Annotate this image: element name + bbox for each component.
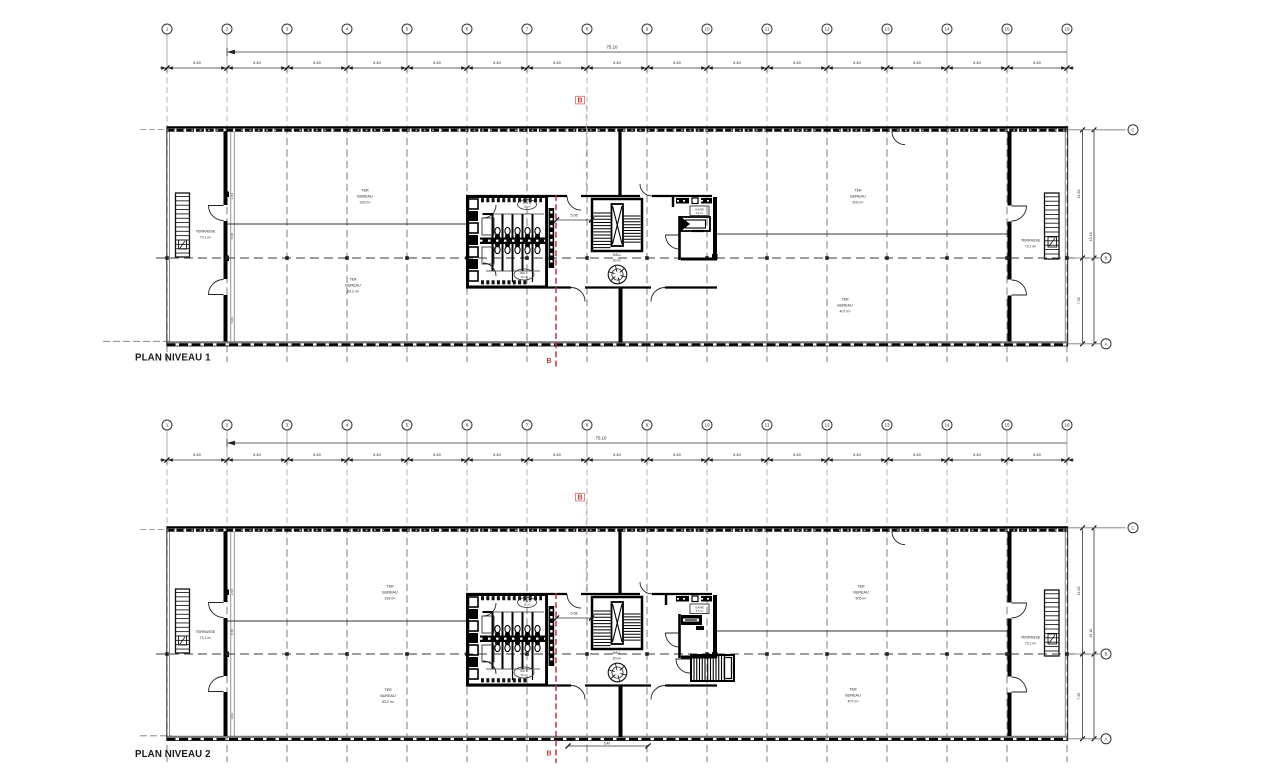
svg-text:11: 11 bbox=[765, 423, 770, 428]
svg-text:5.81: 5.81 bbox=[230, 713, 234, 720]
svg-text:7.35: 7.35 bbox=[1077, 297, 1081, 304]
svg-text:6: 6 bbox=[466, 423, 469, 428]
svg-text:5.40: 5.40 bbox=[253, 452, 262, 457]
svg-text:339 m²: 339 m² bbox=[360, 201, 372, 205]
svg-text:TERRASSE: TERRASSE bbox=[196, 230, 216, 234]
svg-text:5.40: 5.40 bbox=[373, 60, 382, 65]
svg-text:6: 6 bbox=[466, 27, 469, 32]
svg-text:TER: TER bbox=[386, 585, 394, 589]
svg-text:5.40: 5.40 bbox=[193, 60, 202, 65]
svg-text:73.1 m²: 73.1 m² bbox=[200, 636, 212, 640]
svg-text:15 m²: 15 m² bbox=[523, 603, 530, 607]
svg-text:9: 9 bbox=[646, 423, 649, 428]
svg-text:7: 7 bbox=[526, 27, 529, 32]
svg-text:5.40: 5.40 bbox=[613, 452, 622, 457]
svg-text:15: 15 bbox=[1004, 423, 1010, 428]
svg-text:BUREAU: BUREAU bbox=[357, 195, 373, 199]
svg-text:BUREAU: BUREAU bbox=[853, 591, 869, 595]
svg-text:B: B bbox=[1105, 256, 1108, 261]
svg-text:TERRASSE: TERRASSE bbox=[196, 630, 216, 634]
svg-text:5.40: 5.40 bbox=[913, 452, 922, 457]
svg-text:19.18: 19.18 bbox=[1089, 232, 1093, 241]
svg-text:1.20: 1.20 bbox=[614, 286, 620, 290]
svg-text:C: C bbox=[1131, 526, 1134, 531]
svg-text:5.40: 5.40 bbox=[493, 452, 502, 457]
svg-text:9.36: 9.36 bbox=[230, 233, 234, 240]
svg-text:5.40: 5.40 bbox=[973, 60, 982, 65]
svg-text:5.40: 5.40 bbox=[853, 452, 862, 457]
svg-text:13: 13 bbox=[884, 27, 890, 32]
svg-text:BUREAU: BUREAU bbox=[850, 195, 866, 199]
svg-text:BUREAU: BUREAU bbox=[345, 284, 361, 288]
svg-text:5.40: 5.40 bbox=[313, 60, 322, 65]
svg-text:11.83: 11.83 bbox=[1077, 190, 1081, 199]
svg-text:TER: TER bbox=[384, 688, 392, 692]
svg-text:2: 2 bbox=[226, 27, 229, 32]
svg-text:PLAN NIVEAU 2: PLAN NIVEAU 2 bbox=[135, 749, 211, 760]
svg-text:16 m²: 16 m² bbox=[520, 275, 527, 279]
svg-text:407 m²: 407 m² bbox=[840, 310, 852, 314]
svg-text:BUREAU: BUREAU bbox=[845, 694, 861, 698]
svg-text:TER: TER bbox=[857, 585, 865, 589]
svg-text:8: 8 bbox=[586, 423, 589, 428]
svg-text:19.18: 19.18 bbox=[1089, 629, 1093, 638]
svg-text:5.40: 5.40 bbox=[793, 452, 802, 457]
svg-text:5: 5 bbox=[406, 423, 409, 428]
svg-text:5.40: 5.40 bbox=[613, 60, 622, 65]
svg-text:80 m²: 80 m² bbox=[613, 259, 621, 263]
svg-text:5.40: 5.40 bbox=[913, 60, 922, 65]
svg-text:1.20: 1.20 bbox=[614, 684, 620, 688]
svg-text:16: 16 bbox=[1064, 27, 1070, 32]
svg-text:73.1 m²: 73.1 m² bbox=[200, 236, 212, 240]
svg-text:4.5 m²: 4.5 m² bbox=[696, 609, 703, 613]
svg-text:5.40: 5.40 bbox=[973, 452, 982, 457]
svg-text:3: 3 bbox=[286, 423, 289, 428]
svg-text:12: 12 bbox=[824, 27, 830, 32]
svg-text:5: 5 bbox=[406, 27, 409, 32]
svg-text:15 m²: 15 m² bbox=[523, 205, 530, 209]
svg-text:5.40: 5.40 bbox=[604, 742, 611, 746]
svg-text:A: A bbox=[1105, 737, 1108, 742]
svg-text:3: 3 bbox=[286, 27, 289, 32]
svg-text:A: A bbox=[1105, 342, 1108, 347]
svg-text:5.08: 5.08 bbox=[571, 612, 578, 616]
svg-text:BUREAU: BUREAU bbox=[380, 694, 396, 698]
svg-text:5.40: 5.40 bbox=[553, 452, 562, 457]
svg-text:11.83: 11.83 bbox=[1077, 587, 1081, 596]
svg-text:7: 7 bbox=[526, 423, 529, 428]
svg-text:B: B bbox=[546, 358, 551, 365]
svg-text:TER: TER bbox=[361, 189, 369, 193]
svg-text:5.40: 5.40 bbox=[673, 60, 682, 65]
svg-text:505 m²: 505 m² bbox=[856, 597, 868, 601]
svg-text:11: 11 bbox=[765, 27, 770, 32]
svg-text:HALL: HALL bbox=[613, 253, 622, 257]
svg-text:C: C bbox=[1131, 128, 1134, 133]
svg-text:10: 10 bbox=[704, 423, 710, 428]
svg-text:5.40: 5.40 bbox=[673, 452, 682, 457]
svg-text:5.40: 5.40 bbox=[853, 60, 862, 65]
svg-text:5.08: 5.08 bbox=[571, 214, 578, 218]
svg-text:10: 10 bbox=[704, 27, 710, 32]
svg-text:TER: TER bbox=[849, 688, 857, 692]
svg-text:5.40: 5.40 bbox=[433, 60, 442, 65]
svg-text:5.40: 5.40 bbox=[793, 60, 802, 65]
svg-text:339 m²: 339 m² bbox=[385, 597, 397, 601]
svg-text:4: 4 bbox=[346, 27, 349, 32]
svg-text:75.10: 75.10 bbox=[596, 436, 608, 441]
svg-text:75.10: 75.10 bbox=[607, 45, 619, 50]
svg-text:80 m²: 80 m² bbox=[613, 657, 621, 661]
svg-text:14: 14 bbox=[944, 423, 950, 428]
svg-text:73.1 m²: 73.1 m² bbox=[1025, 245, 1037, 249]
svg-text:1: 1 bbox=[166, 27, 169, 32]
svg-text:PLAN NIVEAU 1: PLAN NIVEAU 1 bbox=[135, 353, 211, 364]
svg-text:16: 16 bbox=[1064, 423, 1070, 428]
svg-text:BUREAU: BUREAU bbox=[837, 304, 853, 308]
svg-text:5.40: 5.40 bbox=[1033, 452, 1042, 457]
svg-text:1.63: 1.63 bbox=[230, 589, 234, 596]
svg-text:5.40: 5.40 bbox=[313, 452, 322, 457]
svg-text:5.40: 5.40 bbox=[493, 60, 502, 65]
svg-text:8: 8 bbox=[586, 27, 589, 32]
svg-text:13: 13 bbox=[884, 423, 890, 428]
svg-text:1.63: 1.63 bbox=[230, 193, 234, 200]
svg-text:9: 9 bbox=[646, 27, 649, 32]
svg-text:15: 15 bbox=[1004, 27, 1010, 32]
svg-text:83.2 m²: 83.2 m² bbox=[347, 290, 360, 294]
svg-text:505 m²: 505 m² bbox=[853, 201, 865, 205]
svg-text:1: 1 bbox=[166, 423, 169, 428]
svg-text:TER: TER bbox=[854, 189, 862, 193]
svg-text:B: B bbox=[577, 98, 582, 105]
svg-text:5.40: 5.40 bbox=[733, 60, 742, 65]
svg-text:B: B bbox=[577, 495, 582, 502]
svg-text:5.40: 5.40 bbox=[733, 452, 742, 457]
svg-text:TERRASSE: TERRASSE bbox=[1021, 239, 1041, 243]
svg-text:14: 14 bbox=[944, 27, 950, 32]
svg-text:5.40: 5.40 bbox=[433, 452, 442, 457]
svg-text:407 m²: 407 m² bbox=[848, 700, 860, 704]
svg-text:7.35: 7.35 bbox=[1077, 693, 1081, 700]
svg-text:4: 4 bbox=[346, 423, 349, 428]
svg-text:83.2 m²: 83.2 m² bbox=[382, 700, 395, 704]
svg-text:5.40: 5.40 bbox=[193, 452, 202, 457]
svg-text:BUREAU: BUREAU bbox=[382, 591, 398, 595]
svg-text:5.81: 5.81 bbox=[230, 317, 234, 324]
svg-text:5.40: 5.40 bbox=[553, 60, 562, 65]
svg-text:TER: TER bbox=[841, 298, 849, 302]
svg-text:5.40: 5.40 bbox=[253, 60, 262, 65]
svg-text:HALL: HALL bbox=[613, 651, 622, 655]
svg-text:2: 2 bbox=[226, 423, 229, 428]
svg-text:4.5 m²: 4.5 m² bbox=[696, 211, 703, 215]
svg-text:B: B bbox=[1105, 652, 1108, 657]
svg-text:5.40: 5.40 bbox=[1033, 60, 1042, 65]
svg-text:TER: TER bbox=[349, 278, 357, 282]
svg-text:5.40: 5.40 bbox=[373, 452, 382, 457]
svg-text:12: 12 bbox=[824, 423, 830, 428]
svg-text:9.36: 9.36 bbox=[230, 629, 234, 636]
svg-text:TERRASSE: TERRASSE bbox=[1021, 636, 1041, 640]
svg-text:16 m²: 16 m² bbox=[520, 673, 527, 677]
svg-text:B: B bbox=[546, 751, 551, 758]
svg-text:73.1 m²: 73.1 m² bbox=[1025, 642, 1037, 646]
